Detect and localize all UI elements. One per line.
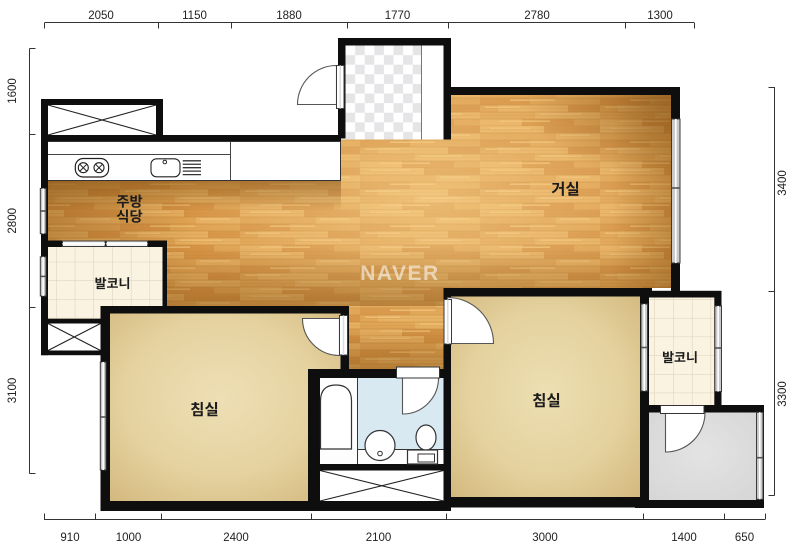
svg-text:2780: 2780 [524,10,550,22]
svg-text:1400: 1400 [671,532,697,544]
svg-text:3300: 3300 [777,381,789,407]
svg-text:1150: 1150 [182,10,207,22]
svg-text:3400: 3400 [777,170,789,196]
svg-text:2400: 2400 [223,532,249,544]
svg-text:NAVER: NAVER [360,262,439,285]
svg-text:2050: 2050 [88,10,114,22]
svg-text:910: 910 [60,532,79,544]
svg-text:1880: 1880 [276,10,302,22]
svg-text:1770: 1770 [385,10,411,22]
svg-text:2800: 2800 [7,208,19,234]
svg-text:1600: 1600 [7,78,19,104]
svg-text:3100: 3100 [7,378,19,404]
svg-text:2100: 2100 [366,532,392,544]
svg-text:650: 650 [735,532,754,544]
svg-text:1000: 1000 [116,532,142,544]
svg-text:3000: 3000 [532,532,558,544]
svg-text:1300: 1300 [647,10,673,22]
